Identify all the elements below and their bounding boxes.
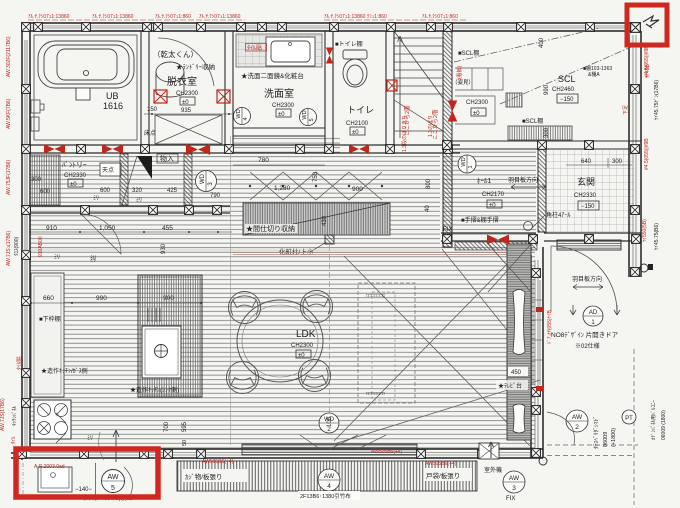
svg-text:■下枠棚: ■下枠棚 <box>39 315 61 323</box>
svg-text:990: 990 <box>96 295 107 302</box>
svg-text:ｶｼﾞ物/板張り: ｶｼﾞ物/板張り <box>185 472 223 481</box>
svg-text:910AB00: 910AB00 <box>38 236 44 257</box>
svg-text:ﾀｲﾙ貼: ﾀｲﾙ貼 <box>15 356 23 370</box>
svg-text:羽目板方向: 羽目板方向 <box>572 275 602 283</box>
svg-text:AW.75JF(17B6): AW.75JF(17B6) <box>6 160 12 195</box>
svg-text:ｱﾙ.ｻ.ｸｼ07ｭ1:860: ｱﾙ.ｻ.ｸｼ07ｭ1:860 <box>422 14 458 20</box>
svg-text:CH2100: CH2100 <box>346 121 369 127</box>
svg-text:ｱﾙ.ｻ.ｸｼ07ｭ1:13860: ｱﾙ.ｻ.ｸｼ07ｭ1:13860 <box>199 14 241 20</box>
svg-text:06009: 06009 <box>603 432 609 447</box>
svg-text:AW.7JS(17B6): AW.7JS(17B6) <box>0 398 6 431</box>
svg-text:430: 430 <box>322 215 328 226</box>
svg-text:ｹｲ550(5B): ｹｲ550(5B) <box>642 219 648 242</box>
svg-text:600: 600 <box>100 188 111 194</box>
svg-text:AW: AW <box>324 473 335 480</box>
svg-text:935: 935 <box>181 108 192 114</box>
svg-text:±0: ±0 <box>352 130 359 136</box>
svg-text:±0: ±0 <box>489 203 496 209</box>
svg-text:320: 320 <box>132 188 143 194</box>
svg-text:洗面室: 洗面室 <box>264 87 294 100</box>
svg-text:4: 4 <box>327 483 331 490</box>
svg-text:戸袋/板張り: 戸袋/板張り <box>426 471 460 480</box>
svg-text:■SCL棚: ■SCL棚 <box>458 49 479 57</box>
svg-text:WD: WD <box>302 110 308 119</box>
svg-text:450: 450 <box>511 370 522 376</box>
svg-text:700: 700 <box>164 421 170 432</box>
svg-text:（乾太くん）: （乾太くん） <box>153 49 198 59</box>
svg-text:AW: AW <box>572 414 583 421</box>
svg-text:±0: ±0 <box>182 100 189 106</box>
svg-text:CH2330: CH2330 <box>64 173 87 179</box>
svg-text:790: 790 <box>210 193 221 199</box>
svg-text:AW505B6(+4): AW505B6(+4) <box>425 461 457 467</box>
svg-text:±0: ±0 <box>70 182 77 188</box>
svg-text:06009 (1800): 06009 (1800) <box>661 410 667 440</box>
svg-text:★洗面二面鏡&化粧台: ★洗面二面鏡&化粧台 <box>241 71 304 80</box>
svg-text:AW505B6(+4): AW505B6(+4) <box>371 449 403 455</box>
svg-text:100: 100 <box>327 416 333 427</box>
svg-text:ｱﾙ.ｻ.ｸｼ07ｭ1:860: ｱﾙ.ｻ.ｸｼ07ｭ1:860 <box>155 14 191 20</box>
svg-text:±0: ±0 <box>278 112 285 118</box>
svg-text:玄関: 玄関 <box>577 176 595 187</box>
svg-text:1: 1 <box>468 165 474 168</box>
svg-text:ﾐﾘ: ﾐﾘ <box>87 436 93 442</box>
svg-text:角柱4ｱｰﾙ: 角柱4ｱｰﾙ <box>546 211 570 219</box>
svg-text:5: 5 <box>309 118 315 121</box>
svg-text:600: 600 <box>40 189 51 195</box>
svg-text:AW505B6(+4): AW505B6(+4) <box>202 459 234 465</box>
svg-text:150: 150 <box>147 107 158 113</box>
svg-text:425: 425 <box>167 188 178 194</box>
svg-text:ﾎｰﾙ1: ﾎｰﾙ1 <box>477 177 491 185</box>
svg-text:455: 455 <box>162 225 173 232</box>
svg-text:ｹｲ45.75(B6): ｹｲ45.75(B6) <box>654 223 660 250</box>
svg-text:CH2300: CH2300 <box>272 103 295 109</box>
svg-text:AW: AW <box>509 475 520 482</box>
svg-text:ﾀﾃｽﾍﾞﾘﾀﾞｼﾏﾄﾞ: ﾀﾃｽﾍﾞﾘﾀﾞｼﾏﾄﾞ <box>593 416 600 449</box>
svg-text:50: 50 <box>182 440 188 446</box>
svg-text:750: 750 <box>313 171 319 182</box>
svg-text:CH2460: CH2460 <box>552 87 575 93</box>
svg-text:LDK: LDK <box>296 329 316 340</box>
svg-text:CH2300: CH2300 <box>176 91 199 97</box>
svg-text:4: 4 <box>243 117 249 120</box>
svg-text:780: 780 <box>258 157 269 164</box>
svg-text:ｷｯﾁﾝﾊﾟﾈﾙ: ｷｯﾁﾝﾊﾟﾈﾙ <box>11 405 18 426</box>
svg-text:脱衣室: 脱衣室 <box>167 75 197 88</box>
svg-text:ﾀｲﾙ: ﾀｲﾙ <box>11 436 17 444</box>
svg-text:595: 595 <box>182 421 188 432</box>
svg-text:WD: WD <box>236 109 242 118</box>
svg-text:AW.5KF(7B6): AW.5KF(7B6) <box>6 98 12 129</box>
svg-text:■トイレ棚: ■トイレ棚 <box>335 40 363 48</box>
svg-text:ｹｲ45.75ｹﾞﾝ(17B6): ｹｲ45.75ｹﾞﾝ(17B6) <box>653 80 660 120</box>
svg-text:UB: UB <box>106 91 119 101</box>
svg-text:640: 640 <box>581 159 592 165</box>
svg-text:A.R.2003.0ad: A.R.2003.0ad <box>34 464 65 470</box>
svg-text:□□□□□□□: □□□□□□□ <box>366 391 385 396</box>
svg-text:床点: 床点 <box>144 129 156 137</box>
svg-text:ﾐﾘ: ﾐﾘ <box>136 198 142 204</box>
svg-text:400: 400 <box>539 37 545 48</box>
svg-text:−150: −150 <box>560 97 574 103</box>
svg-text:■棚103-1363: ■棚103-1363 <box>583 65 612 72</box>
svg-text:±0: ±0 <box>298 353 305 359</box>
svg-text:室外機: 室外機 <box>484 466 502 474</box>
svg-text:ﾐﾘ: ﾐﾘ <box>54 255 60 261</box>
svg-text:■SCL棚: ■SCL棚 <box>522 117 543 125</box>
svg-text:AW.7JSｭ(17B6): AW.7JSｭ(17B6) <box>6 231 12 266</box>
svg-text:CH2300: CH2300 <box>291 343 314 349</box>
svg-text:ｹｲ45B: ｹｲ45B <box>645 63 651 78</box>
svg-text:CH2330: CH2330 <box>574 193 597 199</box>
svg-text:1.3のぼり: 1.3のぼり <box>427 115 434 137</box>
svg-text:PT: PT <box>625 416 633 422</box>
svg-text:1,280: 1,280 <box>274 185 291 192</box>
svg-text:−150: −150 <box>581 204 595 210</box>
svg-text:WD: WD <box>200 173 206 184</box>
svg-text:±0: ±0 <box>473 111 480 117</box>
svg-text:ｱﾙ.ｻ.ｸｼ07ｭ1:13860: ｱﾙ.ｻ.ｸｼ07ｭ1:13860 <box>28 14 70 20</box>
svg-text:800: 800 <box>426 178 432 189</box>
svg-text:■手摺&棚手摺: ■手摺&棚手摺 <box>461 216 499 224</box>
svg-text:AW.302F(2117B6): AW.302F(2117B6) <box>6 36 12 77</box>
svg-text:SCL: SCL <box>558 74 576 84</box>
svg-text:(看板): (看板) <box>456 65 463 79</box>
svg-text:羽目板方向: 羽目板方向 <box>508 176 538 184</box>
svg-text:FIX: FIX <box>506 496 515 502</box>
svg-text:−140−: −140− <box>75 487 93 493</box>
svg-text:（姿見）: （姿見） <box>452 78 474 86</box>
svg-text:#4.5(055)|#9B: #4.5(055)|#9B <box>644 138 650 170</box>
svg-text:&棚A: &棚A <box>588 71 600 78</box>
svg-text:300: 300 <box>544 127 550 138</box>
svg-text:CH2170: CH2170 <box>482 192 505 198</box>
svg-text:660: 660 <box>43 295 54 302</box>
svg-text:ﾐﾘ: ﾐﾘ <box>90 258 96 264</box>
svg-text:NO8ﾃﾞｻﾞｲﾝ 片開きドア: NO8ﾃﾞｻﾞｲﾝ 片開きドア <box>551 330 619 339</box>
svg-text:300: 300 <box>31 177 42 183</box>
svg-text:★間仕切り収納: ★間仕切り収納 <box>246 224 295 233</box>
svg-text:ｶﾃﾞﾝﾊﾟﾈﾙ用ﾊﾞﾙｺﾆｰ: ｶﾃﾞﾝﾊﾟﾈﾙ用ﾊﾞﾙｺﾆｰ <box>650 399 657 440</box>
svg-text:(+1800): (+1800) <box>611 428 617 447</box>
svg-text:ｱﾙ.ｻ.ｸｼ07ｭ1:13860: ｱﾙ.ｻ.ｸｼ07ｭ1:13860 <box>92 14 134 20</box>
svg-text:WD: WD <box>461 157 467 166</box>
svg-text:40: 40 <box>425 205 431 212</box>
svg-text:AW: AW <box>107 474 118 481</box>
svg-text:300: 300 <box>612 159 623 165</box>
svg-text:930: 930 <box>161 243 167 254</box>
svg-text:★造作ｷｯﾁﾝ(ｼﾝｸ側): ★造作ｷｯﾁﾝ(ｼﾝｸ側) <box>130 386 179 394</box>
svg-text:★ﾗﾝﾄﾞﾘｰ収納: ★ﾗﾝﾄﾞﾘｰ収納 <box>176 62 215 71</box>
svg-text:910: 910 <box>46 225 57 232</box>
svg-text:3: 3 <box>512 485 516 492</box>
svg-text:ﾐﾘ: ﾐﾘ <box>93 196 99 202</box>
svg-text:AD: AD <box>589 310 598 316</box>
svg-text:※02仕様: ※02仕様 <box>575 342 600 350</box>
svg-text:1.3段のぼりきち: 1.3段のぼりきち <box>401 115 408 152</box>
svg-text:1,050: 1,050 <box>99 225 116 232</box>
svg-text:★ﾃﾚﾋﾞ台: ★ﾃﾚﾋﾞ台 <box>498 382 522 390</box>
svg-text:トイレ: トイレ <box>347 105 374 115</box>
svg-text:FIX: FIX <box>443 227 452 233</box>
svg-text:2F13B6･1380引竹布: 2F13B6･1380引竹布 <box>300 492 351 500</box>
svg-text:ｸﾛｽ(900): ｸﾛｽ(900) <box>14 236 20 256</box>
svg-text:ｱﾙ.ｻ.ｸｼ07ｭ1:13860 ｸｼｭ1:860: ｱﾙ.ｻ.ｸｼ07ｭ1:13860 ｸｼｭ1:860 <box>324 14 387 20</box>
svg-text:1616: 1616 <box>103 101 123 111</box>
svg-text:ﾊﾟﾝﾄリｰ: ﾊﾟﾝﾄリｰ <box>62 161 87 169</box>
svg-text:天点: 天点 <box>102 166 114 174</box>
svg-text:★造作ｷｯﾁﾝ/ｶﾞｽ側: ★造作ｷｯﾁﾝ/ｶﾞｽ側 <box>41 367 88 375</box>
svg-text:900: 900 <box>352 186 363 193</box>
svg-text:□□□□□□□: □□□□□□□ <box>366 293 385 298</box>
svg-text:ﾄﾞｱ.ｵﾔ(055)ｹｲB: ﾄﾞｱ.ｵﾔ(055)ｹｲB <box>546 309 553 344</box>
svg-text:物入: 物入 <box>160 154 174 163</box>
svg-text:990: 990 <box>544 84 550 95</box>
svg-text:下足: 下足 <box>623 105 629 115</box>
svg-text:2: 2 <box>575 424 579 431</box>
svg-text:CH2300: CH2300 <box>466 100 489 106</box>
svg-text:5: 5 <box>111 485 115 492</box>
